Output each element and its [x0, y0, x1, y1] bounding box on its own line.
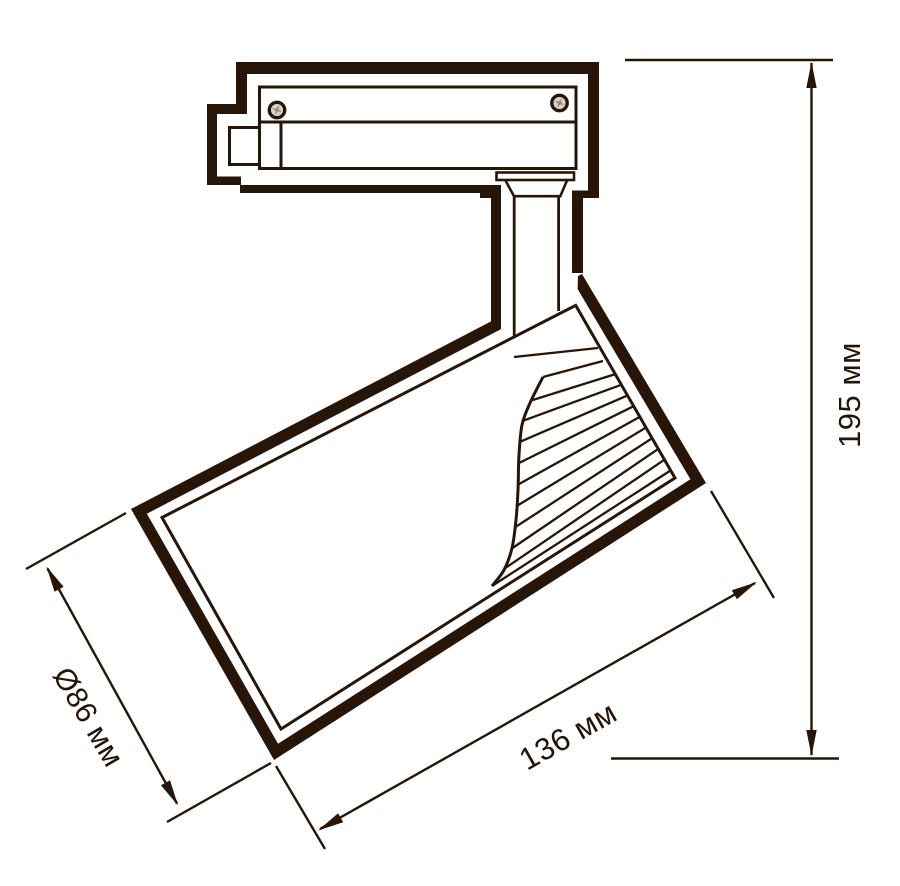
- svg-text:195 мм: 195 мм: [832, 342, 867, 448]
